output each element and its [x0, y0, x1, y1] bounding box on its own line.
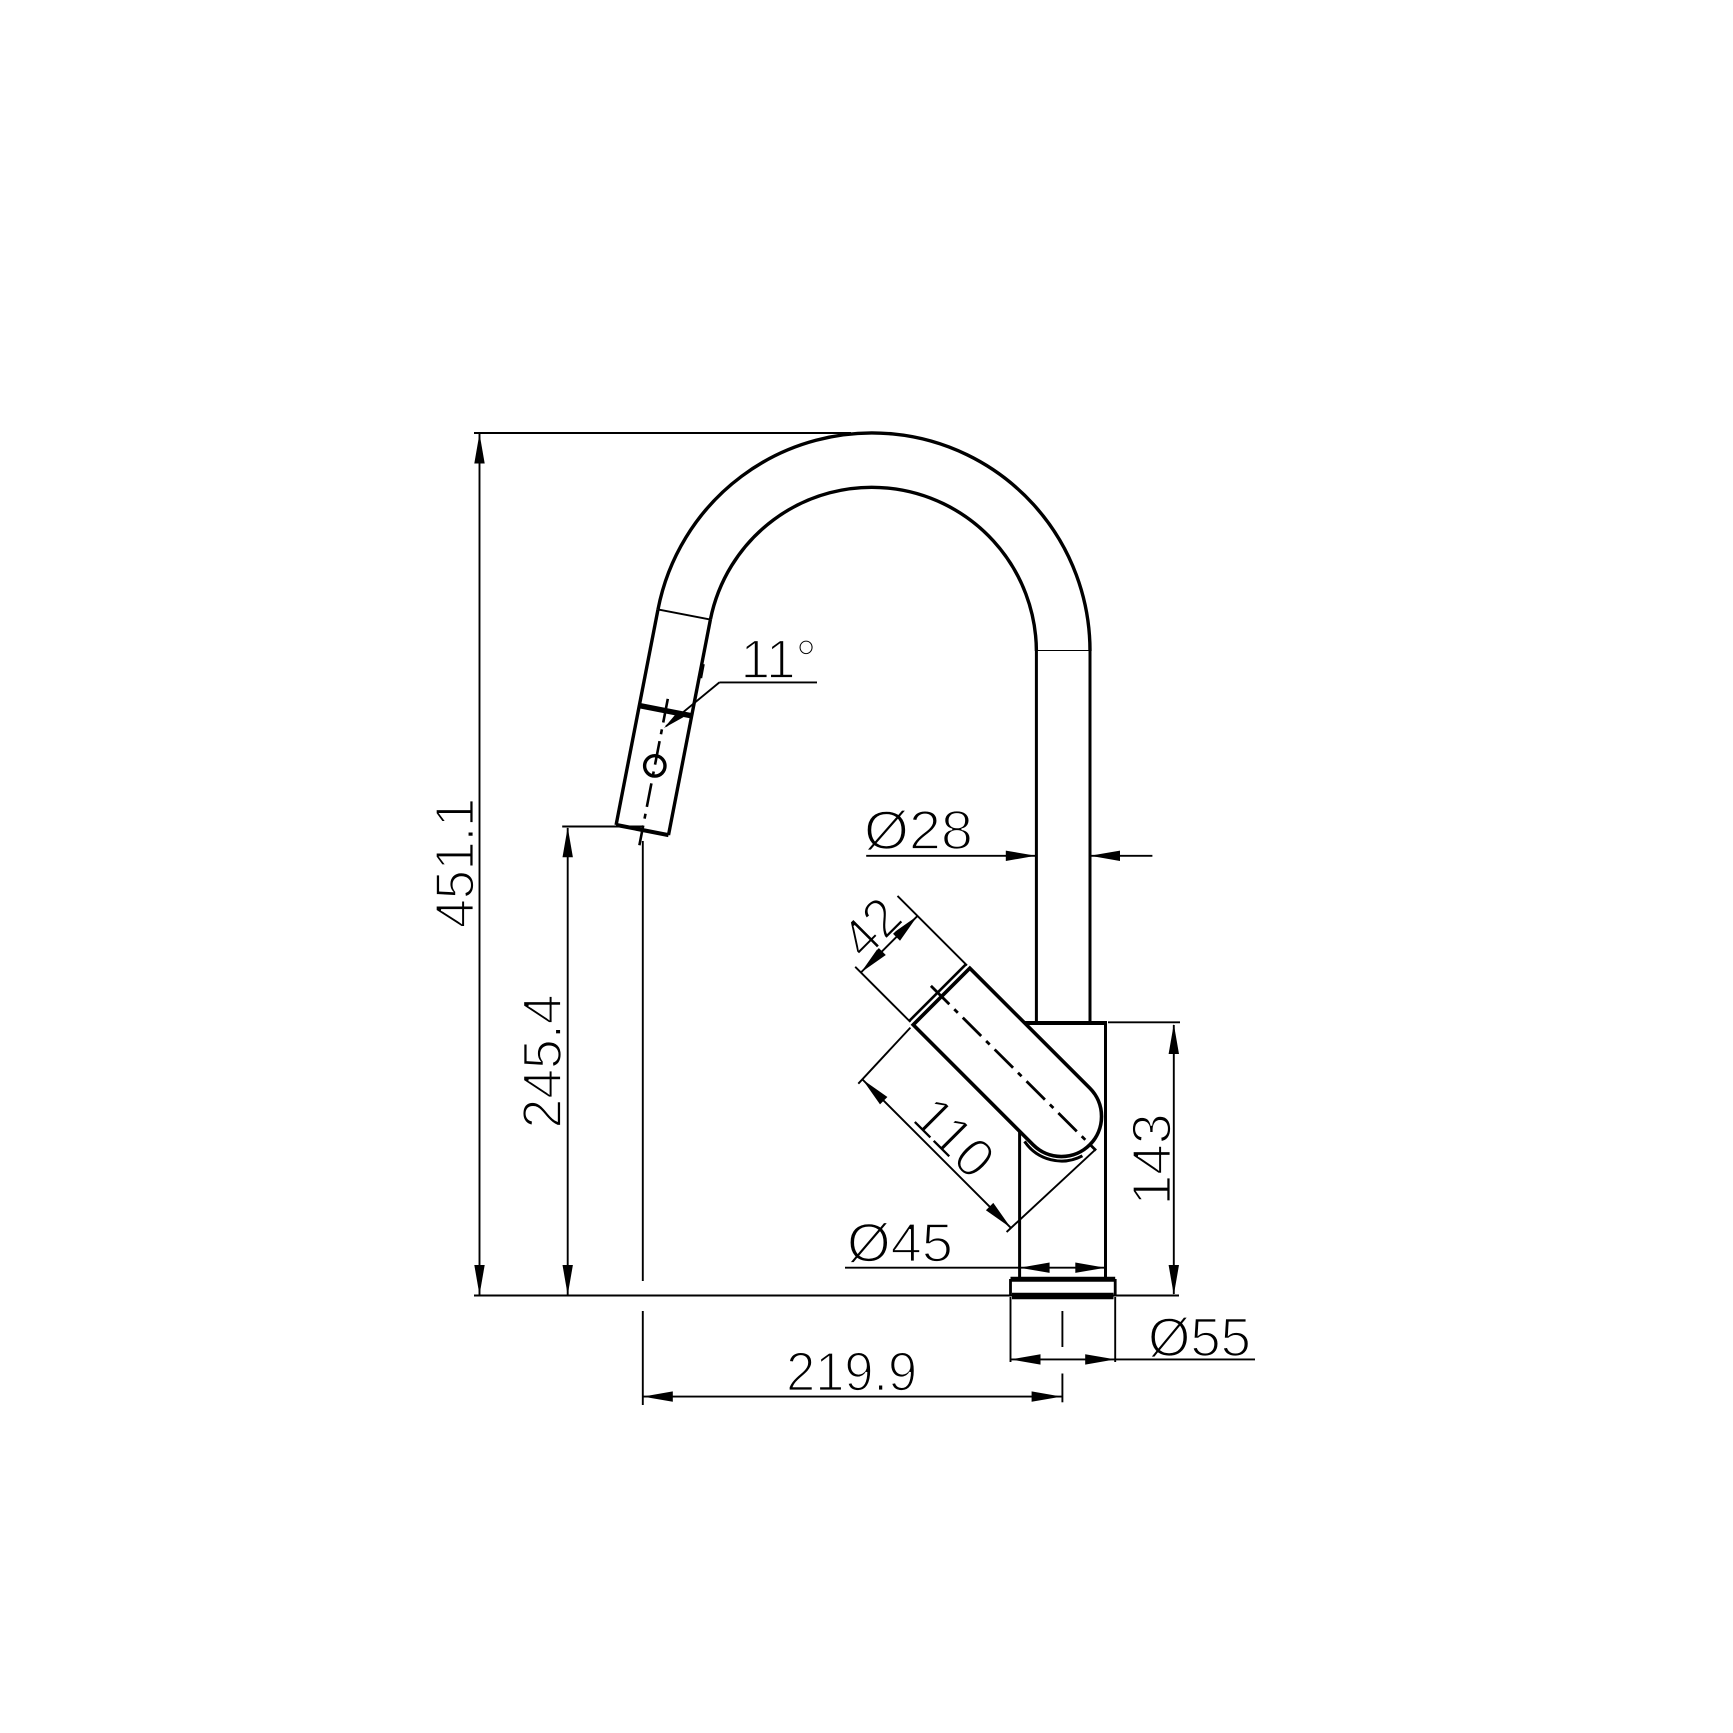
svg-text:Ø45: Ø45: [847, 1212, 953, 1274]
svg-text:451.1: 451.1: [423, 798, 485, 928]
svg-text:143: 143: [1121, 1114, 1183, 1206]
svg-text:245.4: 245.4: [511, 995, 573, 1129]
svg-text:Ø28: Ø28: [864, 799, 973, 861]
svg-text:Ø55: Ø55: [1148, 1306, 1251, 1368]
svg-text:11°: 11°: [741, 628, 817, 690]
svg-text:219.9: 219.9: [786, 1340, 917, 1402]
